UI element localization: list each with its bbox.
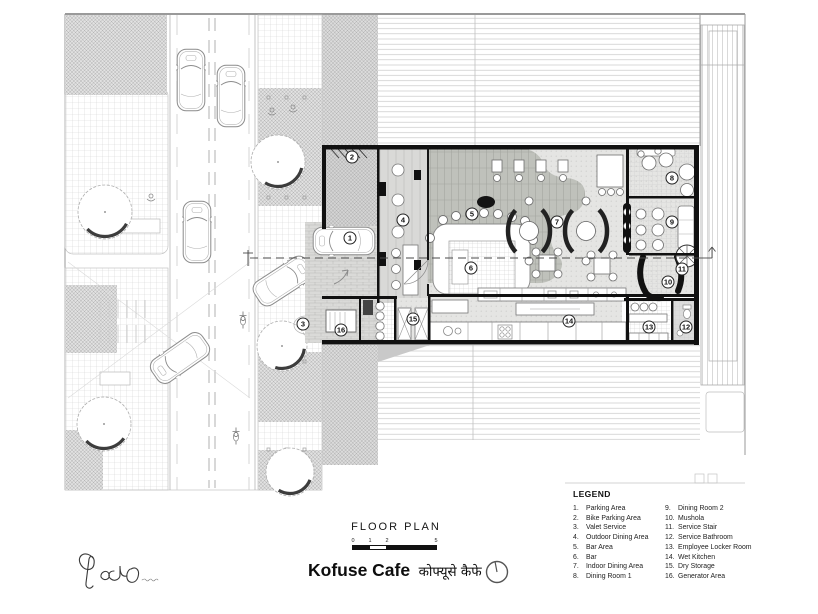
legend-item: 10.Mushola — [665, 514, 775, 524]
scale-bar-graphic — [352, 545, 437, 550]
legend-item: 16.Generator Area — [665, 572, 775, 582]
scale-tick-label: 5 — [434, 538, 437, 544]
architectural-sheet: 12345678910111213141516 LEGEND 1.Parking… — [0, 0, 818, 614]
legend-column-2: 9.Dining Room 210.Mushola11.Service Stai… — [665, 504, 775, 582]
north-arrow-icon — [487, 562, 508, 583]
drawing-type-label: FLOOR PLAN — [336, 521, 456, 533]
architect-signature-logo — [79, 554, 158, 588]
street-site-plan — [65, 15, 322, 496]
car-icon — [175, 49, 207, 111]
room-number-marker: 4 — [397, 214, 410, 227]
room-number-marker: 16 — [335, 324, 348, 337]
legend-item: 5.Bar Area — [573, 543, 657, 553]
car-icon — [181, 201, 213, 263]
cafe-floor-plan — [305, 145, 699, 345]
legend-item: 11.Service Stair — [665, 523, 775, 533]
tree-icon — [77, 397, 131, 451]
legend-item: 3.Valet Service — [573, 523, 657, 533]
room-dining-1 — [629, 148, 695, 197]
legend-item: 6.Bar — [573, 553, 657, 563]
tree-icon — [251, 135, 305, 189]
planter — [477, 196, 495, 208]
scale-tick-label: 2 — [385, 538, 388, 544]
room-number-marker: 10 — [662, 276, 675, 289]
legend-column-1: 1.Parking Area2.Bike Parking Area3.Valet… — [573, 504, 657, 582]
room-number-marker: 6 — [465, 262, 478, 275]
room-number-marker: 14 — [563, 315, 576, 328]
adjacent-roof-bottom — [322, 345, 745, 483]
room-number-marker: 11 — [676, 263, 689, 276]
scale-tick-label: 0 — [351, 538, 354, 544]
legend-item: 2.Bike Parking Area — [573, 514, 657, 524]
legend-item: 12.Service Bathroom — [665, 533, 775, 543]
project-title: Kofuse Cafe कोफ्यूसे कैफे — [308, 560, 482, 581]
room-number-marker: 9 — [666, 216, 679, 229]
car-icon — [215, 65, 247, 127]
adjacent-building-right — [701, 25, 744, 432]
legend: LEGEND 1.Parking Area2.Bike Parking Area… — [573, 489, 803, 582]
legend-item: 8.Dining Room 1 — [573, 572, 657, 582]
room-number-marker: 8 — [666, 172, 679, 185]
legend-item: 1.Parking Area — [573, 504, 657, 514]
legend-item: 15.Dry Storage — [665, 562, 775, 572]
scale-bar: 0 1 2 5 — [352, 538, 438, 552]
legend-item: 14.Wet Kitchen — [665, 553, 775, 563]
room-number-marker: 12 — [680, 321, 693, 334]
legend-item: 7.Indoor Dining Area — [573, 562, 657, 572]
tree-icon — [78, 185, 132, 239]
tree-icon — [266, 448, 314, 496]
project-name: Kofuse Cafe — [308, 560, 410, 580]
room-number-marker: 7 — [551, 216, 564, 229]
room-number-marker: 2 — [346, 151, 359, 164]
legend-item: 4.Outdoor Dining Area — [573, 533, 657, 543]
project-name-devanagari: कोफ्यूसे कैफे — [419, 564, 482, 580]
legend-title: LEGEND — [573, 489, 803, 499]
room-number-marker: 13 — [643, 321, 656, 334]
scale-tick-label: 1 — [368, 538, 371, 544]
room-number-marker: 3 — [297, 318, 310, 331]
motorbike-icon — [233, 428, 240, 445]
room-mushola — [640, 257, 681, 298]
room-number-marker: 15 — [407, 313, 420, 326]
legend-item: 9.Dining Room 2 — [665, 504, 775, 514]
adjacent-roof-top — [322, 15, 700, 146]
room-number-marker: 1 — [344, 232, 357, 245]
room-number-marker: 5 — [466, 208, 479, 221]
motorbike-icon — [240, 312, 247, 329]
legend-item: 13.Employee Locker Room — [665, 543, 775, 553]
